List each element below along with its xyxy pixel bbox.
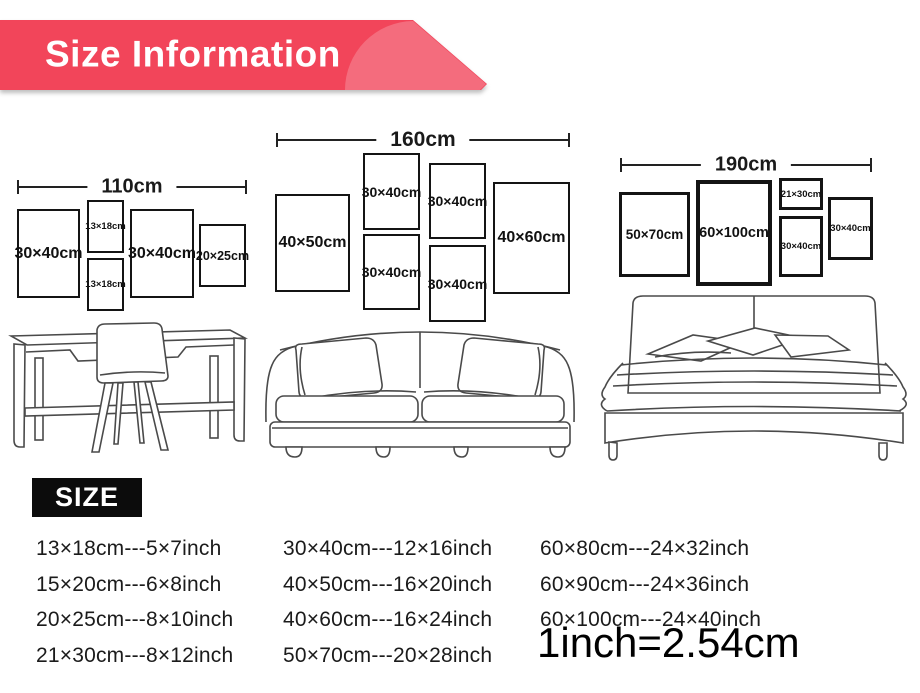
conversion-row: 50×70cm---20×28inch [283, 638, 492, 674]
frame-40x60cm: 40×60cm [493, 182, 570, 294]
frame-30x40cm: 30×40cm [828, 197, 873, 260]
conversion-row: 20×25cm---8×10inch [36, 602, 233, 638]
measure-label: 190cm [701, 154, 791, 177]
frame-30x40cm: 30×40cm [17, 209, 80, 298]
measure-tick-right [870, 158, 872, 172]
measure-label: 160cm [376, 128, 469, 152]
frame-30x40cm: 30×40cm [429, 245, 486, 322]
measure-tick-right [245, 180, 247, 194]
conversion-row: 13×18cm---5×7inch [36, 531, 233, 567]
frame-30x40cm: 30×40cm [363, 234, 420, 310]
frame-60x100cm: 60×100cm [696, 180, 772, 286]
frame-30x40cm: 30×40cm [429, 163, 486, 239]
page-title: Size Information [45, 33, 341, 75]
frame-30x40cm: 30×40cm [779, 216, 823, 277]
inch-cm-conversion-note: 1inch=2.54cm [537, 619, 800, 667]
measure-tick-right [568, 133, 570, 147]
frame-40x50cm: 40×50cm [275, 194, 350, 292]
size-information-infographic: Size Information 110cm 30×40cm 13×18cm 1… [0, 0, 920, 693]
width-measure-160cm: 160cm [276, 131, 570, 149]
conversion-row: 30×40cm---12×16inch [283, 531, 492, 567]
frame-13x18cm: 13×18cm [87, 200, 124, 253]
bed-illustration [593, 293, 918, 481]
conversion-row: 60×90cm---24×36inch [540, 567, 761, 603]
conversion-row: 40×50cm---16×20inch [283, 567, 492, 603]
sofa-illustration [250, 316, 590, 461]
conversion-column-1: 13×18cm---5×7inch 15×20cm---6×8inch 20×2… [36, 531, 233, 673]
width-measure-110cm: 110cm [17, 178, 247, 196]
conversion-row: 60×80cm---24×32inch [540, 531, 761, 567]
conversion-row: 15×20cm---6×8inch [36, 567, 233, 603]
conversion-row: 21×30cm---8×12inch [36, 638, 233, 674]
width-measure-190cm: 190cm [620, 156, 872, 174]
conversion-row: 40×60cm---16×24inch [283, 602, 492, 638]
frame-50x70cm: 50×70cm [619, 192, 690, 277]
measure-label: 110cm [87, 176, 176, 199]
frame-13x18cm: 13×18cm [87, 258, 124, 311]
frame-30x40cm: 30×40cm [130, 209, 194, 298]
desk-and-chair-illustration [8, 320, 253, 463]
frame-30x40cm: 30×40cm [363, 153, 420, 230]
banner: Size Information [0, 16, 494, 96]
frame-20x25cm: 20×25cm [199, 224, 246, 287]
size-heading: SIZE [32, 478, 142, 517]
frame-21x30cm: 21×30cm [779, 178, 823, 210]
conversion-column-2: 30×40cm---12×16inch 40×50cm---16×20inch … [283, 531, 492, 673]
